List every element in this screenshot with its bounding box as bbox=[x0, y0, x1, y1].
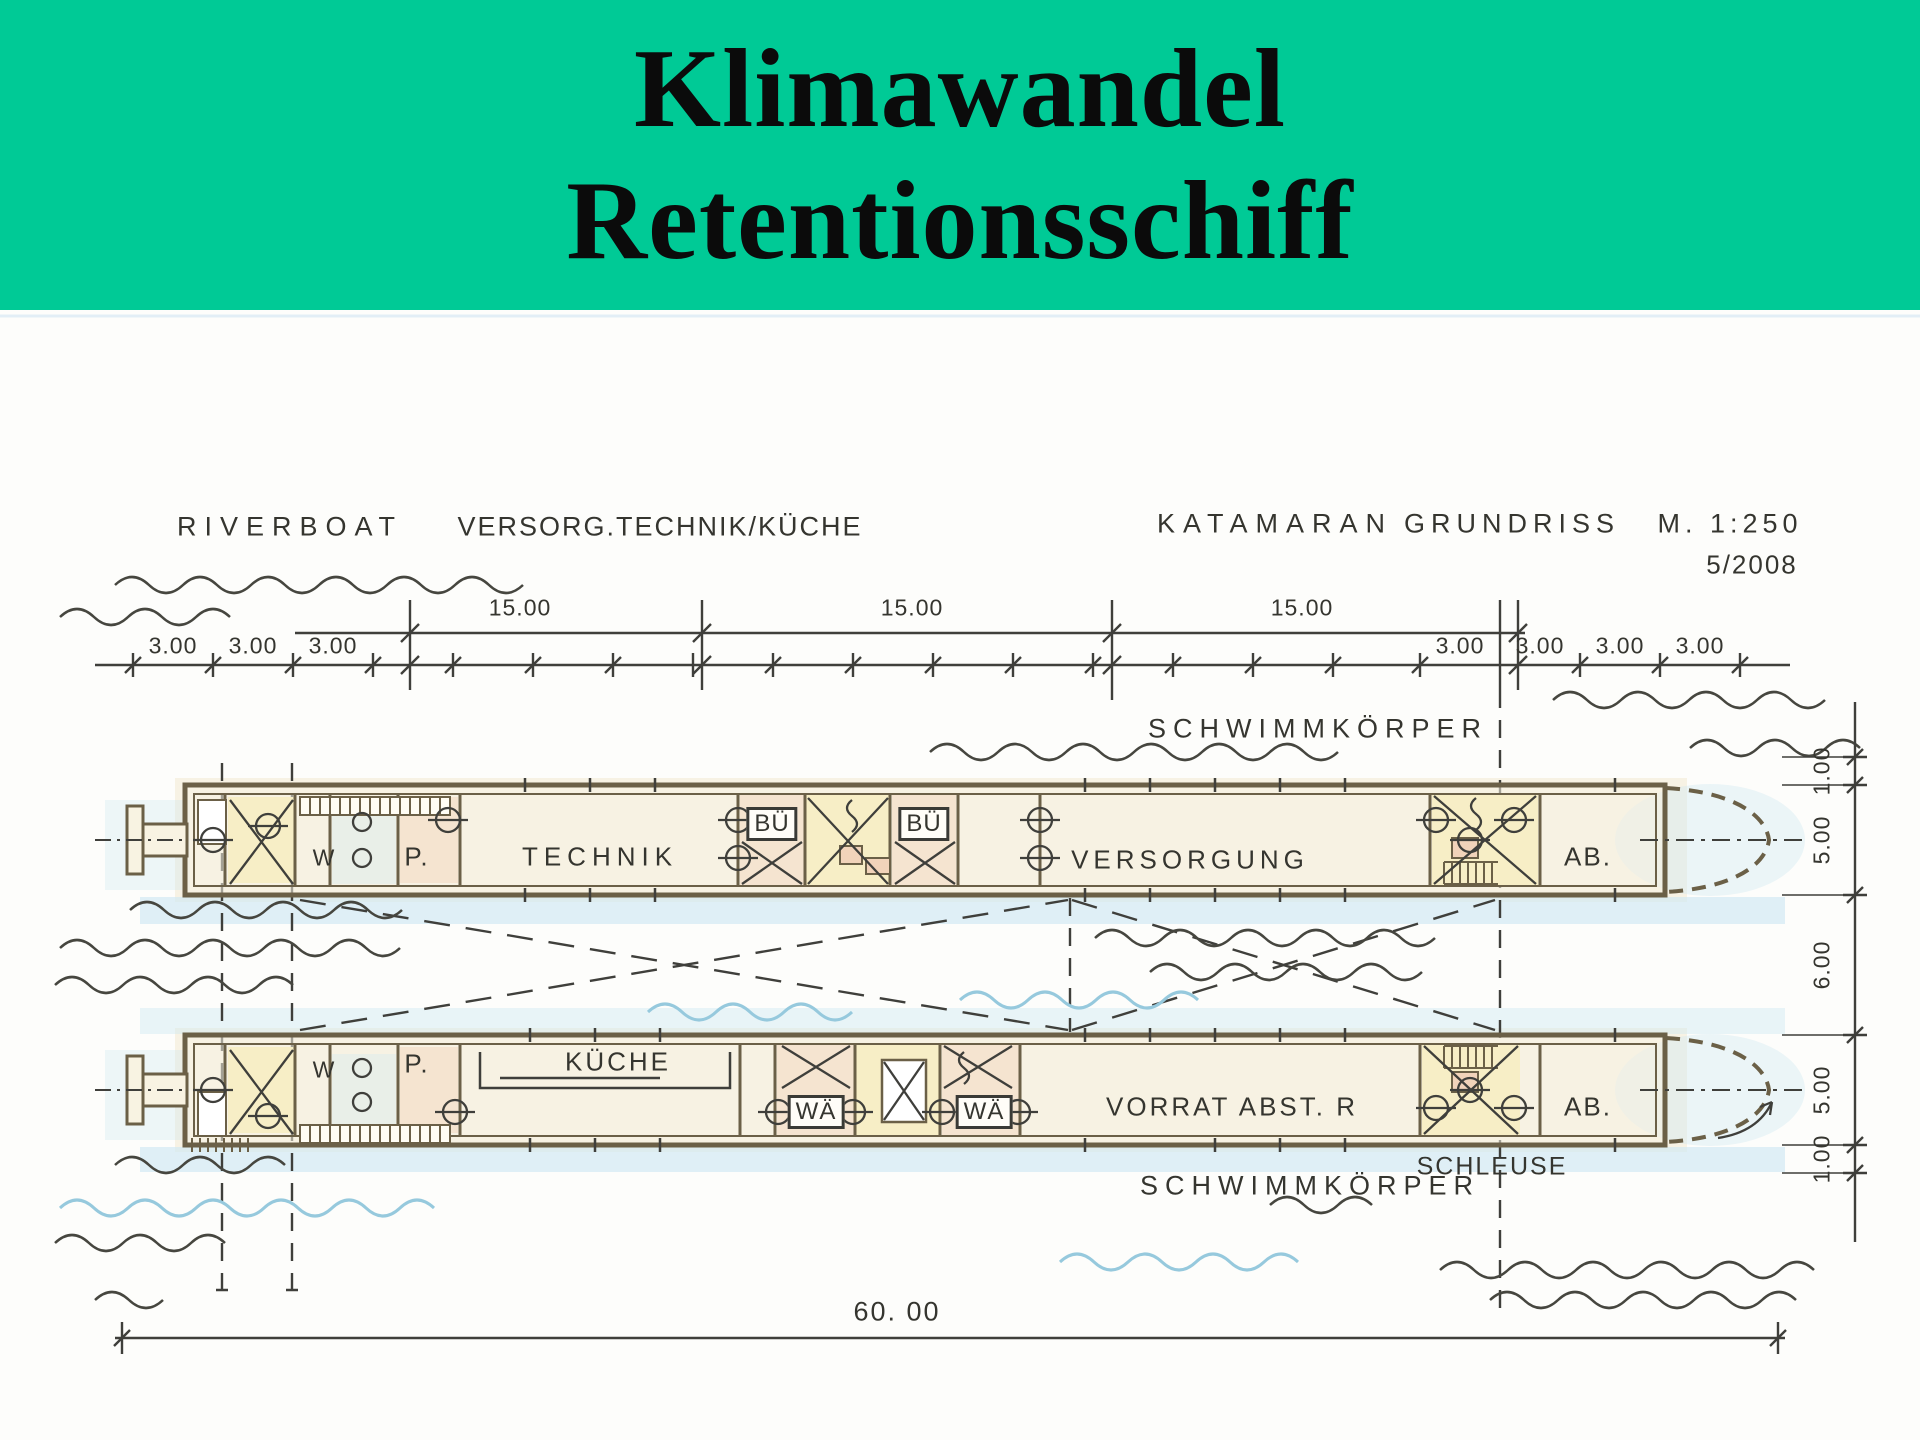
drawing-title-riverboat: RIVERBOAT bbox=[177, 512, 403, 543]
room-lower-pantry: P. bbox=[404, 1049, 429, 1080]
floor-plan: RIVERBOAT VERSORG.TECHNIK/KÜCHE KATAMARA… bbox=[0, 0, 1920, 1440]
dim-total-length: 60. 00 bbox=[853, 1297, 940, 1328]
room-upper-buero2: BÜ bbox=[898, 807, 949, 841]
dim-right-3-2: 3.00 bbox=[1516, 633, 1565, 660]
room-lower-vorrat: VORRAT ABST. R bbox=[1106, 1092, 1358, 1123]
room-lower-ab: AB. bbox=[1564, 1092, 1612, 1123]
lower-hull bbox=[95, 1028, 1805, 1152]
slide: Klimawandel Retentionsschiff bbox=[0, 0, 1920, 1440]
dim-top-15-1: 15.00 bbox=[489, 595, 552, 622]
room-lower-kueche: KÜCHE bbox=[565, 1047, 671, 1078]
dim-top-15-3: 15.00 bbox=[1271, 595, 1334, 622]
dim-right-3-4: 3.00 bbox=[1676, 633, 1725, 660]
room-upper-ab: AB. bbox=[1564, 842, 1612, 873]
room-upper-pantry: P. bbox=[404, 842, 429, 873]
dim-left-3-1: 3.00 bbox=[149, 633, 198, 660]
room-upper-wc: W bbox=[313, 845, 336, 872]
plan-linework bbox=[0, 0, 1920, 1440]
dim-side-3: 6.00 bbox=[1809, 941, 1836, 990]
room-lower-waesche2: WÄ bbox=[956, 1095, 1013, 1129]
dim-side-4: 5.00 bbox=[1809, 1066, 1836, 1115]
label-schwimmkoerper-top: SCHWIMMKÖRPER bbox=[1148, 714, 1488, 745]
room-upper-buero1: BÜ bbox=[746, 807, 797, 841]
dim-side-5: 1.00 bbox=[1809, 1135, 1836, 1184]
drawing-date: 5/2008 bbox=[1706, 550, 1798, 581]
water-waves bbox=[55, 577, 1860, 1308]
room-upper-technik: TECHNIK bbox=[522, 842, 678, 873]
drawing-title-subject: VERSORG.TECHNIK/KÜCHE bbox=[457, 512, 862, 543]
room-lower-wc: W bbox=[313, 1057, 336, 1084]
drawing-scale: M. 1:250 bbox=[1657, 509, 1802, 540]
dim-side-1: 1.00 bbox=[1809, 747, 1836, 796]
room-lower-waesche1: WÄ bbox=[788, 1095, 845, 1129]
dim-side-2: 5.00 bbox=[1809, 816, 1836, 865]
drawing-title-grundriss: GRUNDRISS bbox=[1404, 509, 1620, 540]
room-upper-versorgung: VERSORGUNG bbox=[1071, 845, 1309, 876]
dim-right-3-1: 3.00 bbox=[1436, 633, 1485, 660]
dimension-lines bbox=[95, 600, 1867, 1354]
label-schleuse: SCHLEUSE bbox=[1417, 1153, 1568, 1182]
drawing-title-katamaran: KATAMARAN bbox=[1157, 509, 1393, 540]
dim-left-3-2: 3.00 bbox=[229, 633, 278, 660]
dim-right-3-3: 3.00 bbox=[1596, 633, 1645, 660]
upper-hull bbox=[95, 778, 1805, 902]
dim-left-3-3: 3.00 bbox=[309, 633, 358, 660]
dim-top-15-2: 15.00 bbox=[881, 595, 944, 622]
